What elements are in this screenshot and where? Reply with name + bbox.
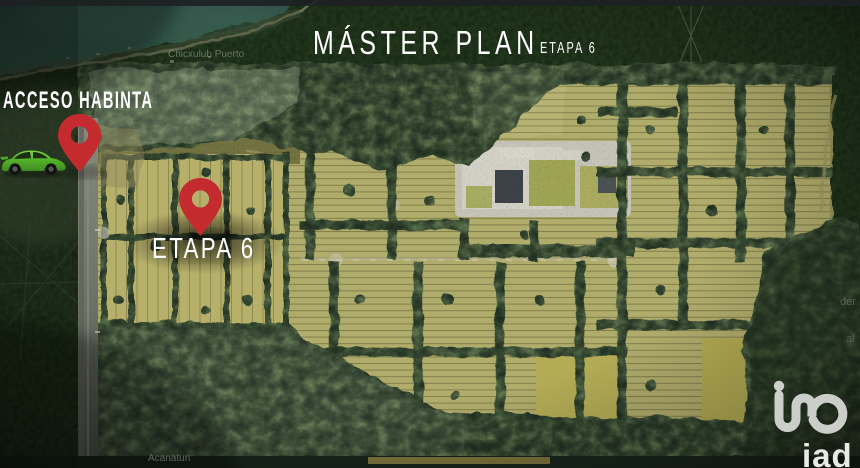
svg-text:Acanatun: Acanatun [148,453,190,464]
svg-text:der: der [840,296,856,308]
svg-text:al: al [846,333,855,345]
svg-text:Chicxulub Puerto: Chicxulub Puerto [168,49,245,60]
